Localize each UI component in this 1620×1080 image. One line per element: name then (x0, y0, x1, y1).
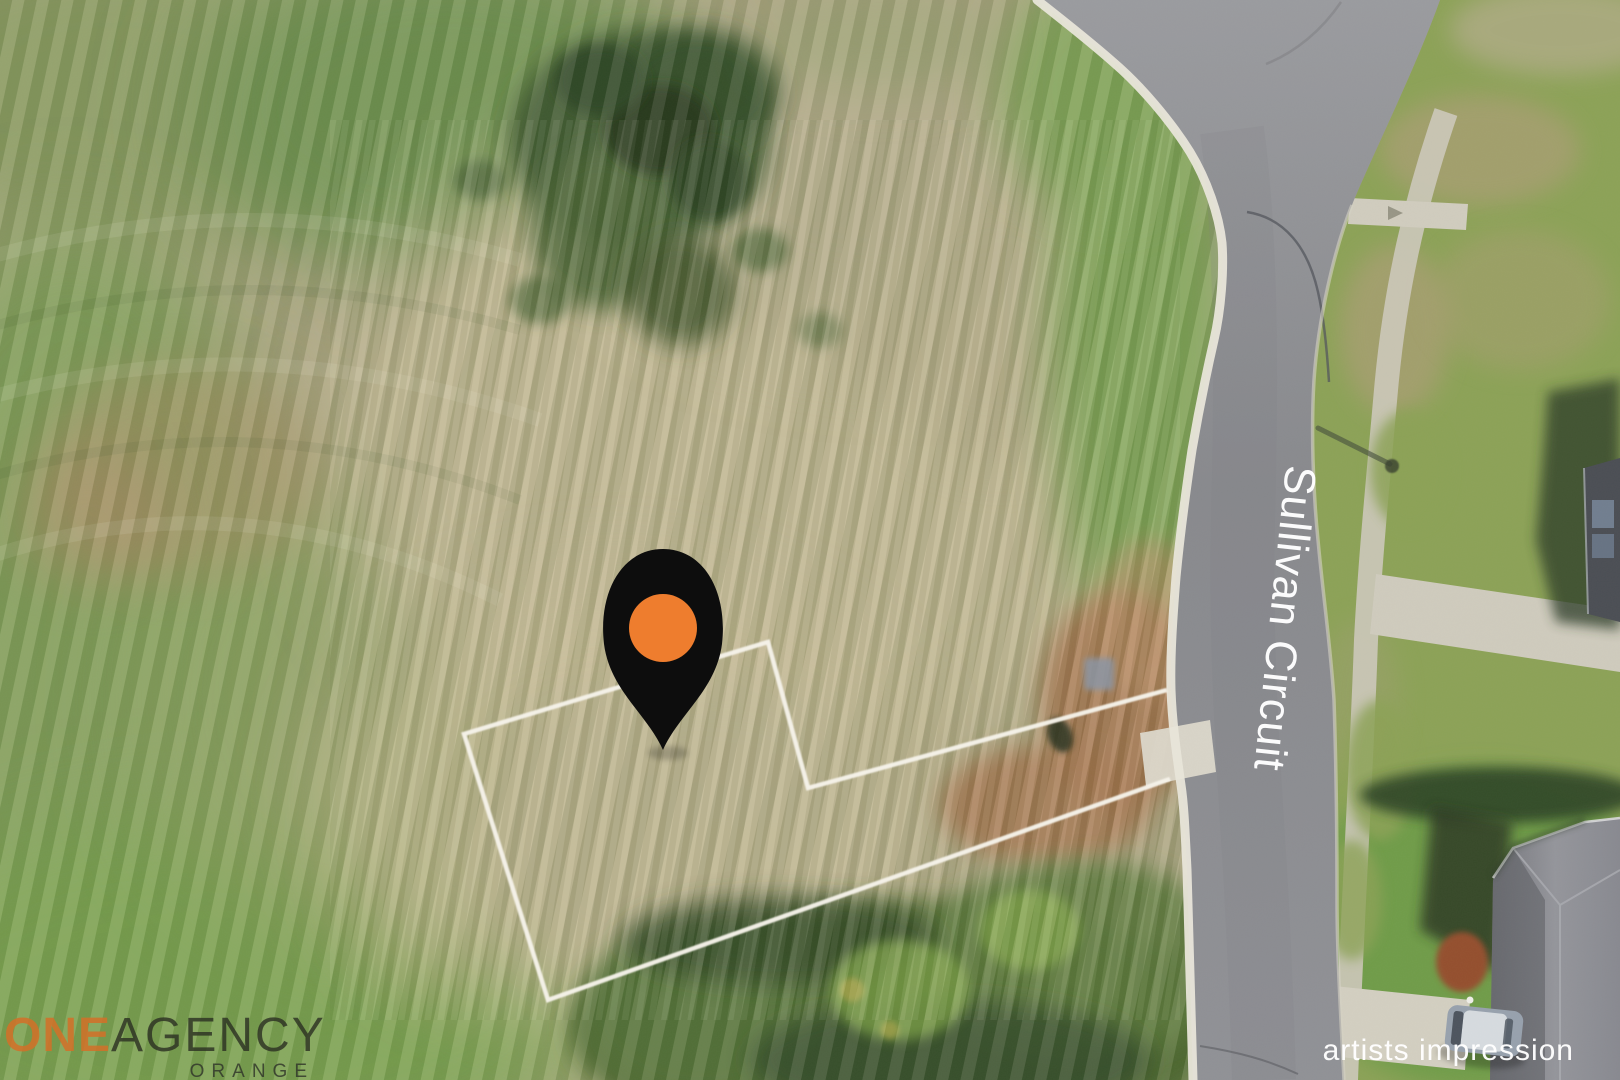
brand-agency: AGENCY (111, 1012, 326, 1060)
brand-watermark: ONEAGENCY ORANGE (4, 1012, 326, 1080)
credit-label: artists impression (1323, 1036, 1574, 1066)
brand-region: ORANGE (4, 1062, 326, 1080)
grain-overlay (0, 0, 1620, 1080)
aerial-photo: Sullivan Circuit ONEAGENCY ORANGE artist… (0, 0, 1620, 1080)
aerial-photo-canvas (0, 0, 1620, 1080)
brand-one: ONE (4, 1012, 111, 1060)
pin-dot (629, 594, 697, 662)
